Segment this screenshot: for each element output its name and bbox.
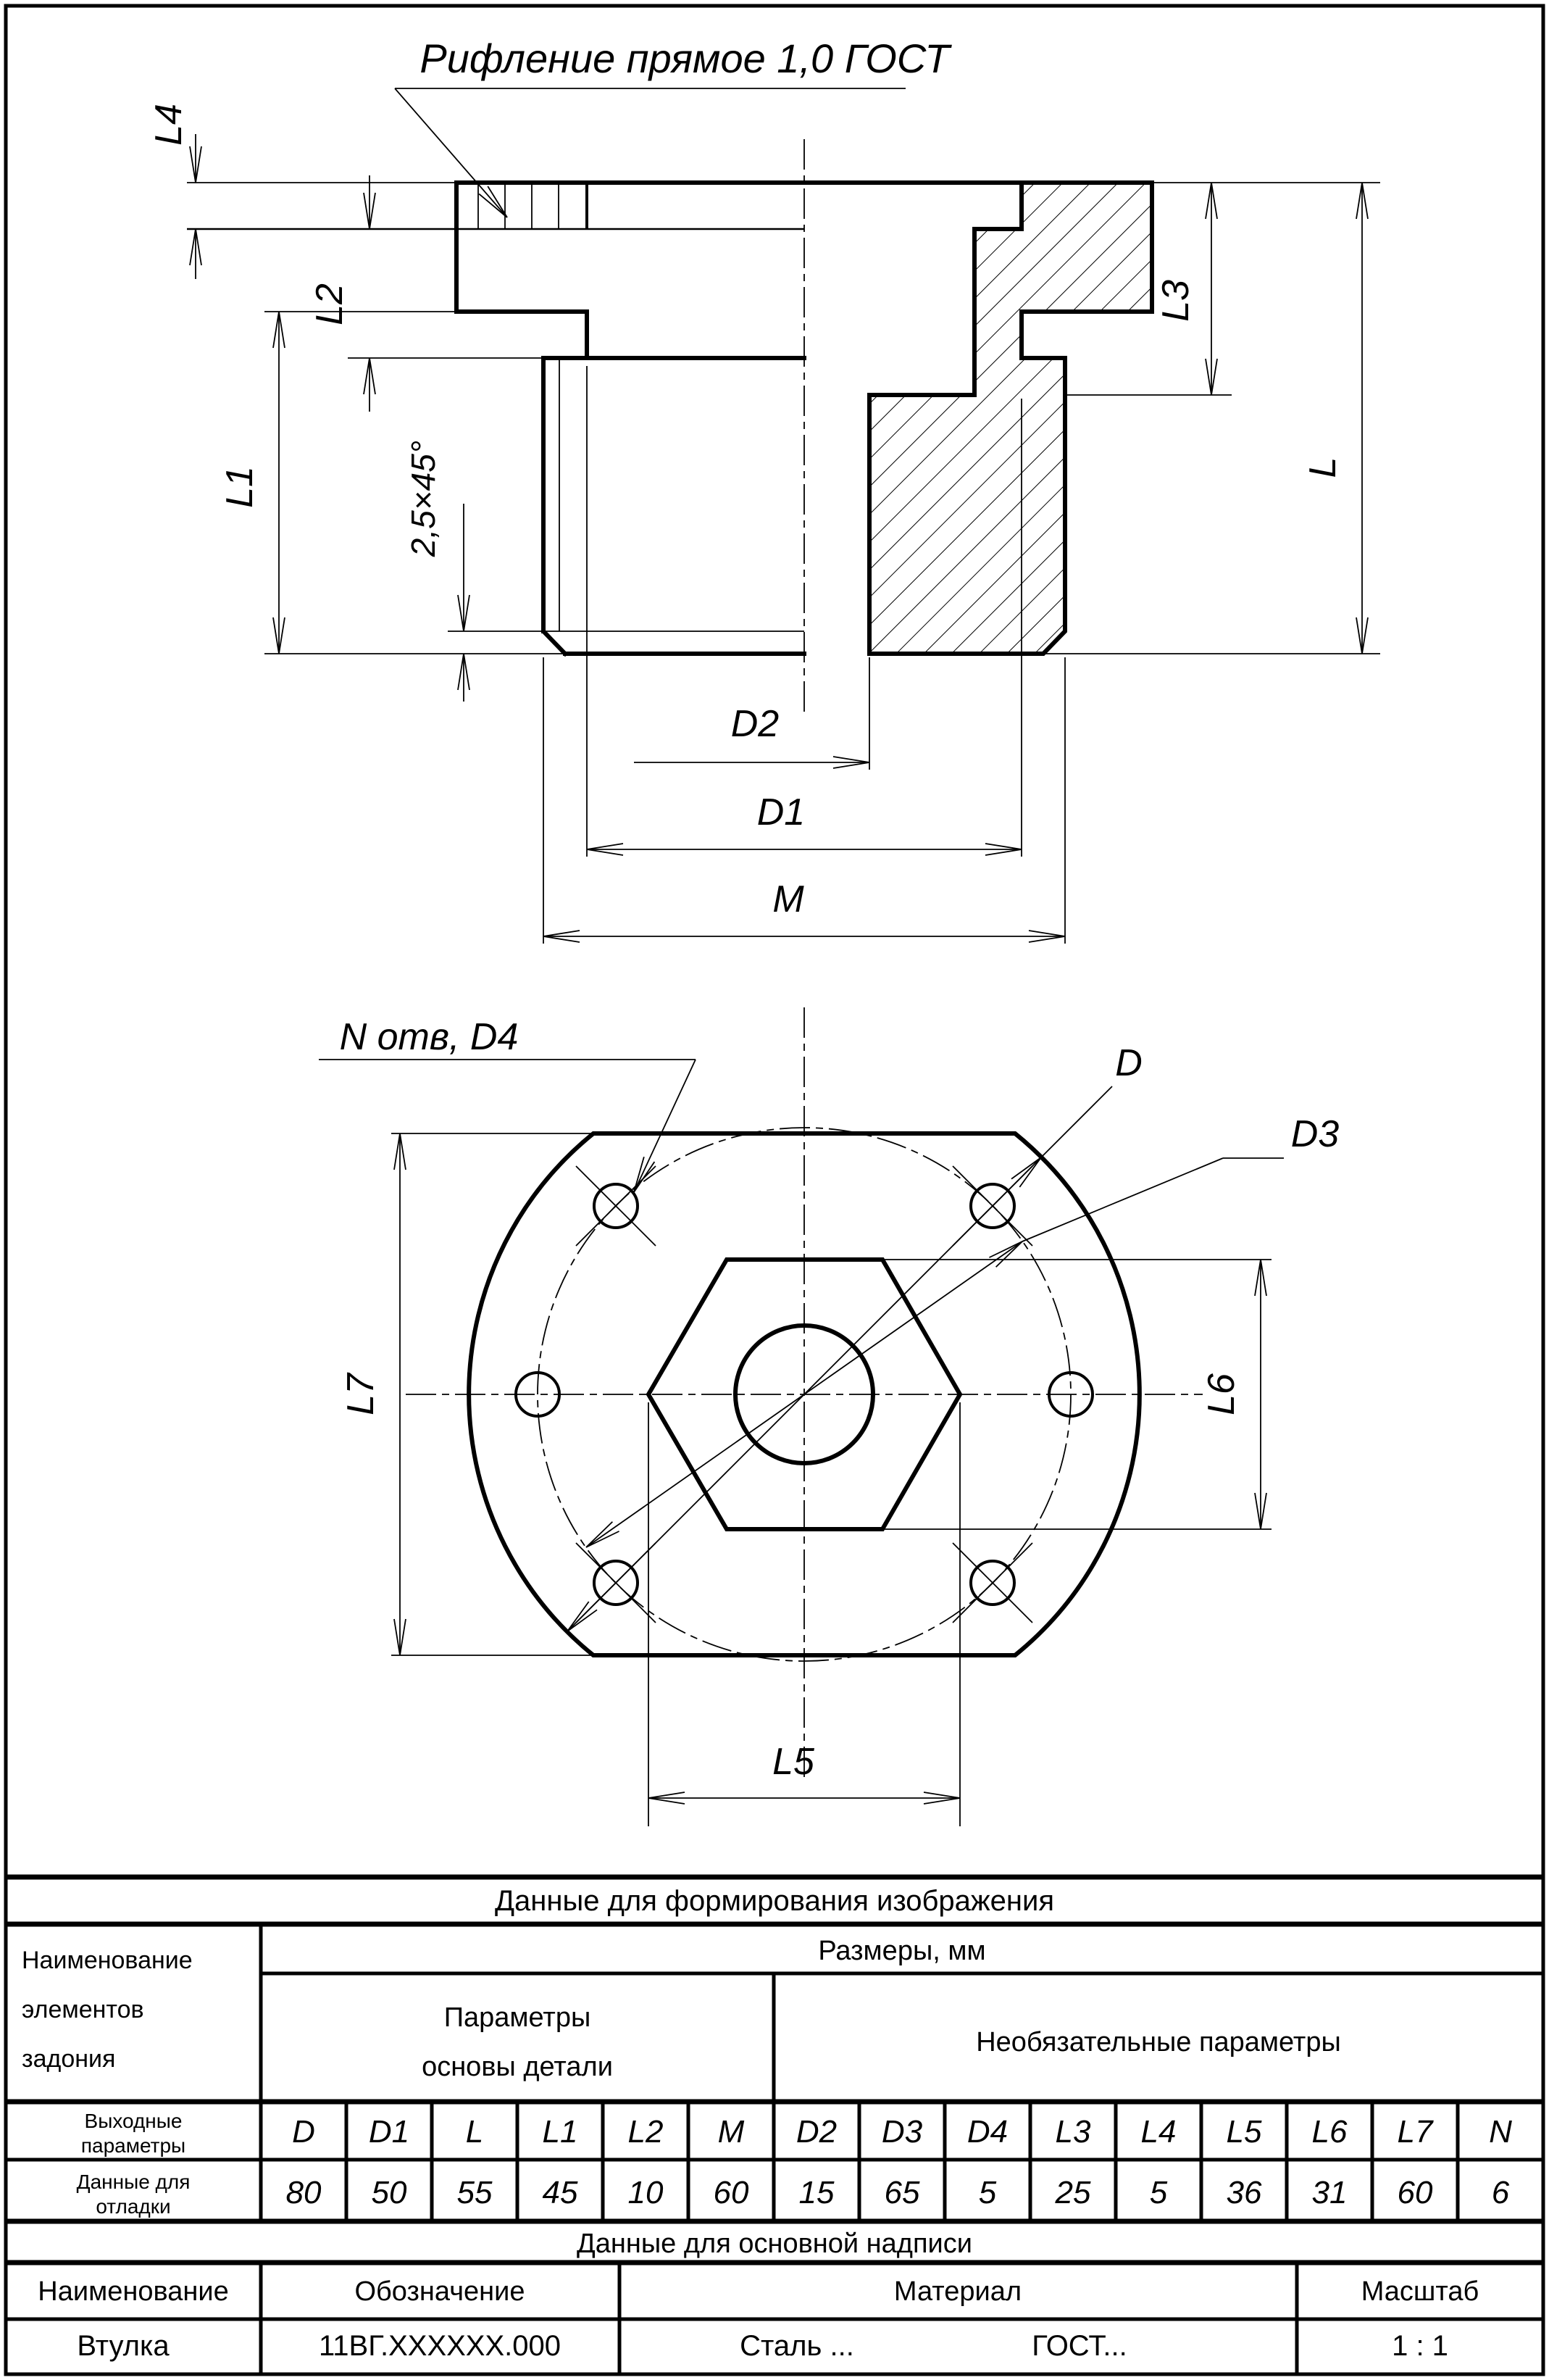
dim-l2-label: L2 [309, 283, 351, 325]
part-designation: 11ВГ.XXXXXX.000 [319, 2330, 561, 2362]
svg-text:50: 50 [372, 2175, 407, 2210]
svg-text:45: 45 [543, 2175, 578, 2210]
svg-text:L3: L3 [1056, 2114, 1091, 2150]
svg-text:L4: L4 [1141, 2114, 1177, 2150]
svg-text:36: 36 [1227, 2175, 1262, 2210]
svg-text:65: 65 [885, 2175, 920, 2210]
part-name: Втулка [77, 2330, 170, 2362]
part-scale: 1 : 1 [1392, 2330, 1448, 2362]
left-header-line1: Наименование [22, 1947, 193, 1974]
holes-callout-label: N отв, D4 [340, 1016, 519, 1058]
dim-l4-label: L4 [148, 104, 190, 146]
dim-m-label: M [772, 878, 804, 920]
dim-d3 [583, 1158, 1284, 1552]
svg-text:5: 5 [1150, 2175, 1168, 2210]
debug-row-line2: отладки [96, 2195, 170, 2218]
svg-text:10: 10 [628, 2175, 664, 2210]
dim-l5-label: L5 [772, 1741, 815, 1783]
dim-d2-label: D2 [731, 703, 780, 745]
output-row-line1: Выходные [85, 2110, 183, 2132]
column-headers: D D1 L L1 L2 M D2 D3 D4 L3 L4 L5 L6 L7 N [292, 2114, 1512, 2150]
drawing-sheet: Рифление прямое 1,0 ГОСТ [0, 0, 1549, 2380]
holes-callout [319, 1060, 696, 1194]
svg-text:L: L [466, 2114, 483, 2150]
svg-text:L5: L5 [1227, 2114, 1262, 2150]
dim-l7-label: L7 [340, 1372, 382, 1415]
svg-text:L6: L6 [1312, 2114, 1348, 2150]
svg-text:6: 6 [1492, 2175, 1510, 2210]
svg-text:D: D [292, 2114, 315, 2150]
svg-text:D4: D4 [967, 2114, 1008, 2150]
designation-header: Обозначение [354, 2276, 525, 2307]
svg-text:80: 80 [286, 2175, 322, 2210]
svg-text:D1: D1 [369, 2114, 409, 2150]
parameter-table: Данные для формирования изображения Наим… [6, 1877, 1543, 2374]
name-header: Наименование [38, 2276, 228, 2307]
svg-text:D2: D2 [796, 2114, 837, 2150]
dim-d-label: D [1115, 1042, 1143, 1084]
output-row-line2: параметры [81, 2134, 185, 2157]
knurl-note: Рифление прямое 1,0 ГОСТ [419, 36, 952, 81]
front-view: Рифление прямое 1,0 ГОСТ [148, 36, 1380, 944]
base-params-line2: основы детали [422, 2052, 613, 2082]
svg-text:5: 5 [979, 2175, 997, 2210]
scale-header: Масштаб [1361, 2276, 1479, 2307]
dim-l1-label: L1 [219, 466, 261, 508]
dim-chamfer-label: 2,5×45° [404, 441, 442, 557]
material-header: Материал [894, 2276, 1022, 2307]
section-hatch-polygon [869, 183, 1152, 654]
svg-text:25: 25 [1055, 2175, 1091, 2210]
chamfer-left [543, 631, 565, 654]
table-title: Данные для формирования изображения [495, 1885, 1054, 1917]
title-block-title: Данные для основной надписи [577, 2229, 972, 2259]
dim-l-label: L [1302, 457, 1344, 478]
svg-text:D3: D3 [882, 2114, 923, 2150]
dim-d3-label: D3 [1291, 1113, 1340, 1155]
svg-text:M: M [718, 2114, 745, 2150]
left-header-line2: элементов [22, 1996, 144, 2023]
part-material: Сталь ... [740, 2330, 854, 2362]
svg-text:60: 60 [1398, 2175, 1433, 2210]
svg-text:L7: L7 [1398, 2114, 1434, 2150]
sizes-header: Размеры, мм [818, 1936, 985, 1966]
left-header-line3: задония [22, 2045, 115, 2073]
knurl-leader [395, 88, 507, 217]
svg-text:N: N [1489, 2114, 1512, 2150]
svg-text:60: 60 [714, 2175, 749, 2210]
dim-l3-label: L3 [1155, 280, 1197, 322]
svg-text:L2: L2 [628, 2114, 664, 2150]
technical-drawing: Рифление прямое 1,0 ГОСТ [0, 0, 1549, 2380]
base-params-line1: Параметры [444, 2002, 591, 2033]
svg-text:31: 31 [1312, 2175, 1348, 2210]
dim-l6-label: L6 [1201, 1373, 1243, 1415]
value-cells: 80 50 55 45 10 60 15 65 5 25 5 36 31 60 … [286, 2175, 1510, 2210]
part-gost: ГОСТ... [1032, 2330, 1127, 2362]
svg-text:15: 15 [799, 2175, 835, 2210]
dim-d1-label: D1 [757, 791, 805, 833]
svg-text:55: 55 [457, 2175, 493, 2210]
debug-row-line1: Данные для [77, 2171, 191, 2193]
bottom-view: D D3 N отв, D4 L7 L6 L5 [319, 1007, 1339, 1826]
svg-text:L1: L1 [543, 2114, 578, 2150]
optional-params-header: Необязательные параметры [976, 2027, 1341, 2057]
